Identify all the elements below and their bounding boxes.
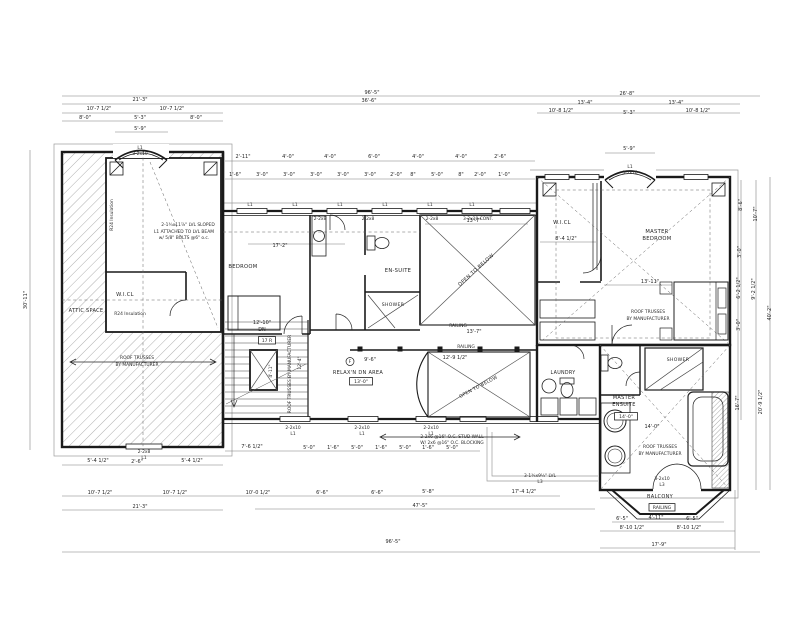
note-label: L1 [290, 431, 295, 437]
note-label: L1 [337, 202, 342, 208]
boxed-label: 13'-0" [354, 379, 368, 385]
dimension-label: 6'-5" [616, 516, 628, 522]
dimension-label: 5'-3" [623, 110, 635, 116]
dimension-label: 1'-6" [327, 445, 339, 451]
note-label: L3 [537, 479, 542, 485]
dimension-label: 14'-0" [644, 424, 659, 430]
dimension-label: 5'-8" [422, 489, 434, 495]
dimension-label: 40'-2" [767, 305, 773, 320]
room-label: OPEN TO BELOW [457, 253, 495, 288]
note-label: W/ 2x6 @16" O.C. BLOCKING [420, 440, 484, 446]
dimension-label: 9'-2 1/2" [751, 278, 757, 299]
note-label: 2-2x10 [354, 425, 370, 431]
dimension-label: 3'-0" [364, 172, 376, 178]
dimension-label: 16'-7" [735, 395, 741, 410]
boxed-label: 17 R [262, 338, 273, 344]
dimension-label: 13'-11" [641, 279, 659, 285]
dimension-label: 5'-0" [351, 445, 363, 451]
dimension-label: 4'-0" [412, 154, 424, 160]
note-label: ROOF TRUSSES BY MANUFACTURER [287, 335, 293, 413]
note-label: L1 [292, 202, 297, 208]
dimension-label: 8" [410, 172, 415, 178]
dimension-label: 47'-5" [412, 503, 427, 509]
dimension-label: DN [258, 327, 266, 333]
dimension-label: 3'-0" [337, 172, 349, 178]
dimension-label: 6'-6" [371, 490, 383, 496]
dimension-label: 12'-9 1/2" [443, 355, 468, 361]
laundry-sink [542, 379, 556, 393]
dimension-label: 6'-6" [316, 490, 328, 496]
toilet [608, 358, 622, 369]
boxed-label: 14'-0" [619, 414, 633, 420]
room-label: OPEN TO BELOW [458, 374, 499, 399]
dimension-label: 17'-2" [272, 243, 287, 249]
dimension-label: 3'-0" [283, 172, 295, 178]
dimension-label: 96'-5" [364, 90, 379, 96]
dimension-label: 8'-4 1/2" [555, 236, 576, 242]
dimension-label: 2'-0" [390, 172, 402, 178]
dimension-label: 12'-10" [253, 320, 271, 326]
dimension-label: 10'-7 1/2" [163, 490, 188, 496]
note-label: 3-2x10 [654, 476, 670, 482]
note-label: R24 Insulation [114, 311, 146, 317]
note-label: L1 [141, 455, 146, 461]
room-label: BEDROOM [642, 236, 671, 242]
dimension-label: 10'-7 1/2" [87, 106, 112, 112]
note-label: 3-2x10 [132, 151, 148, 157]
dimension-label: 13'-7" [466, 329, 481, 335]
note-label: BY MANUFACTURER [115, 362, 158, 368]
room-label: BALCONY [647, 494, 674, 500]
note-label: 2-2x8 [314, 216, 327, 222]
vanity [312, 216, 326, 256]
room-label: W.I.CL [553, 220, 571, 226]
dimension-label: 6'-5" [686, 516, 698, 522]
note-label: RAILING [457, 344, 475, 350]
dimension-label: 4'-0" [324, 154, 336, 160]
room-label: ENSUITE [612, 402, 636, 408]
dimension-label: 36'-6" [361, 98, 376, 104]
note-label: 2-2x8 [362, 216, 375, 222]
toilet [561, 383, 573, 398]
note-label: 3-2x10 [622, 170, 638, 176]
dimension-label: 1'-6" [375, 445, 387, 451]
dimension-label: 3'-0" [736, 319, 742, 331]
note-label: 2-2x10 [423, 425, 439, 431]
dimension-label: 3'-0" [737, 246, 743, 258]
dimension-label: 17'-4 1/2" [512, 489, 537, 495]
note-label: 3-2x10 CONT. [463, 216, 493, 222]
dimension-label: 6'-0" [368, 154, 380, 160]
dimension-label: 8'-0" [190, 115, 202, 121]
note-label: L1 [137, 145, 142, 151]
dimension-label: 3'-0" [256, 172, 268, 178]
note-label: 12'-4" [297, 356, 303, 369]
dimension-label: 8'-6" [738, 199, 744, 211]
note-label: 3-1¾x9½" LVL [524, 472, 556, 479]
dimension-label: 3'-0" [310, 172, 322, 178]
dimension-label: 2'-0" [474, 172, 486, 178]
note-label: L1 [427, 202, 432, 208]
floor-plan-page: 96'-5"21'-3"36'-6"26'-8"10'-7 1/2"10'-7 … [0, 0, 800, 640]
dimension-label: 4'-11" [648, 515, 663, 521]
room-label: MASTER [613, 395, 636, 401]
note-label: L1 [469, 202, 474, 208]
note-label: RAILING [449, 323, 467, 329]
dimension-label: 17'-9" [651, 542, 666, 548]
dimension-label: 20'-9 1/2" [758, 390, 764, 415]
room-label: SHOWER [382, 302, 405, 308]
dimension-label: 10'-7 1/2" [160, 106, 185, 112]
room-label: MASTER [645, 229, 668, 235]
note-label: F [349, 359, 352, 365]
dimension-label: 2'-11" [235, 154, 250, 160]
note-label: ROOF TRUSSES [643, 444, 677, 450]
dimension-label: 10'-7 1/2" [88, 490, 113, 496]
dimension-label: 5'-0" [399, 445, 411, 451]
dimension-label: 21'-3" [132, 504, 147, 510]
dimension-label: 8'-0" [79, 115, 91, 121]
note-label: L3 [659, 482, 664, 488]
left-bedroom-room [106, 158, 221, 332]
dimension-label: 5'-4 1/2" [87, 458, 108, 464]
room-label: EN-SUITE [385, 268, 412, 274]
room-label: RELAX'N DN AREA [333, 370, 384, 376]
note-label: 2-2x10 [285, 425, 301, 431]
room-label: LAUNDRY [551, 370, 576, 376]
floor-plan-drawing: 96'-5"21'-3"36'-6"26'-8"10'-7 1/2"10'-7 … [0, 0, 800, 640]
note-label: 2-2x8 [426, 216, 439, 222]
note-label: BY MANUFACTURER [638, 451, 681, 457]
note-label: ROOF TRUSSES [120, 355, 154, 361]
note-label: ROOF TRUSSES [631, 309, 665, 315]
dimension-label: 6'-2 1/2" [736, 277, 742, 298]
note-label: R24 Insulation [109, 199, 115, 231]
dimension-label: 5'-0" [431, 172, 443, 178]
master-bed [674, 282, 728, 340]
dimension-label: 10'-8 1/2" [549, 108, 574, 114]
dimension-label: 1'-0" [498, 172, 510, 178]
room-label: BEDROOM [228, 264, 257, 270]
dimension-label: 8" [458, 172, 463, 178]
dimension-label: 5'-3" [134, 115, 146, 121]
toilet [375, 238, 389, 249]
dimension-label: 13'-4" [668, 100, 683, 106]
dimension-label: 30'-11" [23, 291, 29, 309]
dimension-label: 8'-10 1/2" [677, 525, 702, 531]
dimension-label: 13'-4" [577, 100, 592, 106]
note-label: 2-2x8 [138, 449, 151, 455]
dimension-label: 2'-6" [494, 154, 506, 160]
room-label: ATTIC SPACE [69, 308, 104, 314]
dimension-label: 5'-9" [134, 126, 146, 132]
room-label: SHOWER [667, 357, 690, 363]
dimension-label: 10'-8 1/2" [686, 108, 711, 114]
dimension-label: 26'-8" [619, 91, 634, 97]
dimension-label: 7'-6 1/2" [241, 444, 262, 450]
dimension-label: 1'-6" [229, 172, 241, 178]
boxed-label: RAILING [653, 505, 672, 511]
dimension-label: 5'-0" [303, 445, 315, 451]
note-label: 2-1¾x11⅞" LVL SLOPED [161, 222, 215, 228]
dimension-label: 5'-4 1/2" [181, 458, 202, 464]
dimension-label: 96'-5" [385, 539, 400, 545]
dimension-label: 10'-7" [753, 206, 759, 221]
note-label: L1 [382, 202, 387, 208]
note-label: L1 [359, 431, 364, 437]
note-label: L1 ATTACHED TO LVL BEAM [154, 229, 214, 235]
note-label: L1 [627, 164, 632, 170]
note-label: w/ 5/8" BOLTS @6" o.c. [159, 235, 209, 241]
note-label: L1 [428, 431, 433, 437]
note-label: 4'-11" [268, 364, 274, 377]
note-label: BY MANUFACTURER [626, 316, 669, 322]
room-label: W.I.CL [116, 292, 134, 298]
dimension-label: 8'-10 1/2" [620, 525, 645, 531]
note-label: L1 [247, 202, 252, 208]
dimension-label: 5'-9" [623, 146, 635, 152]
dimension-label: 21'-3" [132, 97, 147, 103]
dimension-label: 9'-6" [364, 357, 376, 363]
dimension-label: 4'-0" [282, 154, 294, 160]
dimension-label: 10'-0 1/2" [246, 490, 271, 496]
dimension-label: 4'-0" [455, 154, 467, 160]
roof-hatch-band [712, 392, 729, 488]
